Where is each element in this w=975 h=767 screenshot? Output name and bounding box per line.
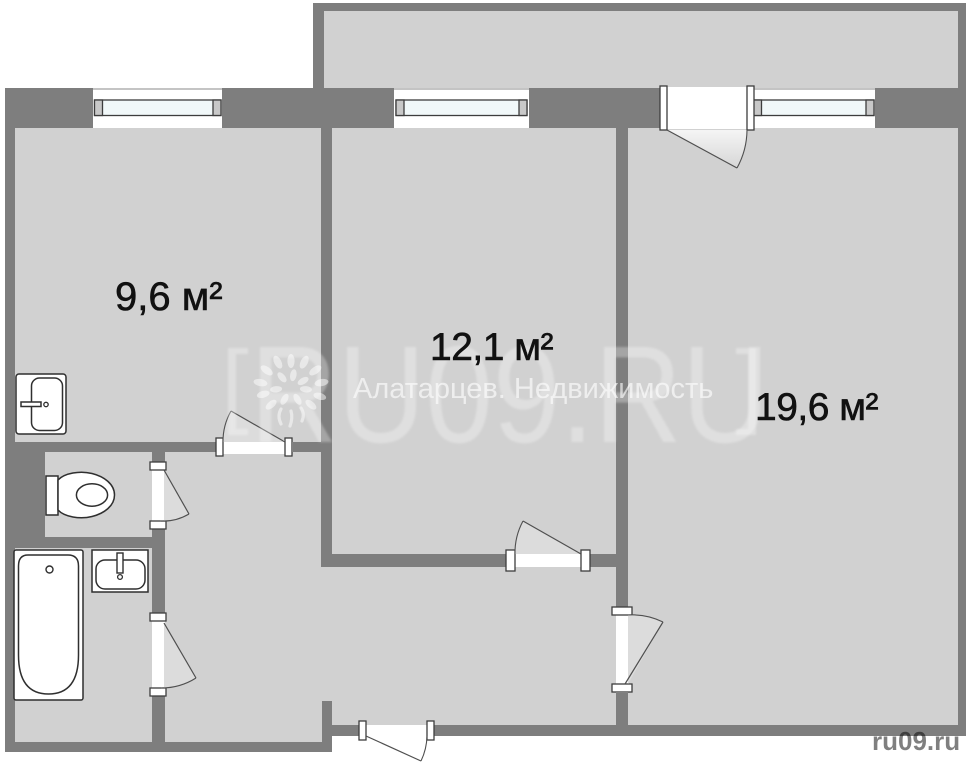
svg-text:ru09.ru: ru09.ru [872,726,960,756]
svg-text:9,6 м²: 9,6 м² [115,275,223,319]
svg-text:19,6 м²: 19,6 м² [755,386,879,429]
svg-text:12,1 м²: 12,1 м² [430,326,554,369]
svg-text:Алатарцев. Недвижимость: Алатарцев. Недвижимость [353,373,713,405]
